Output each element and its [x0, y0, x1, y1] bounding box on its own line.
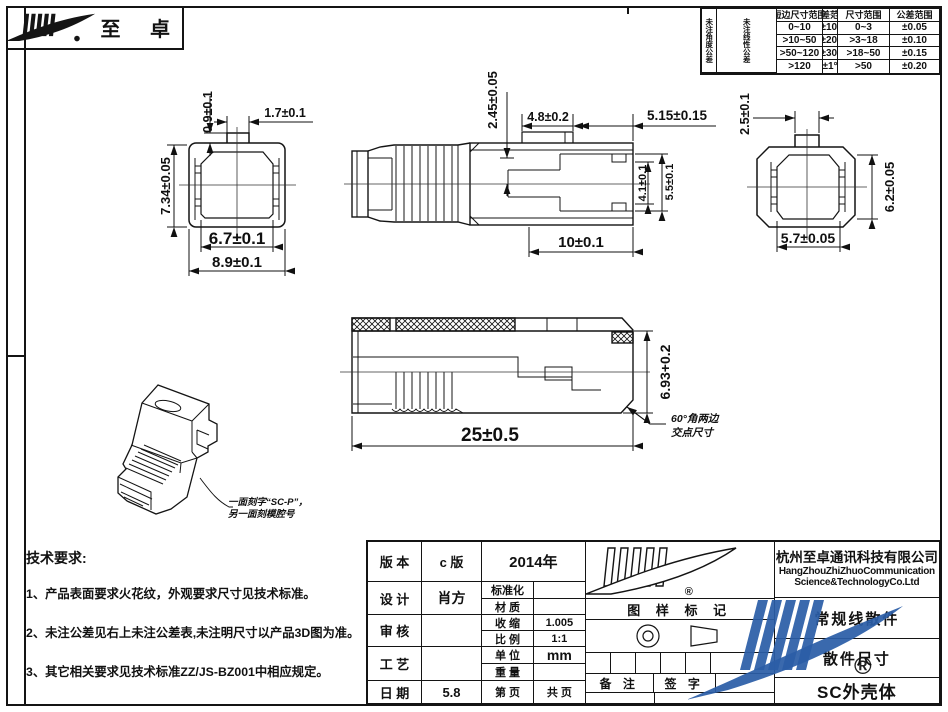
year-value: 2014年 — [482, 542, 585, 582]
registered-mark-blue: ® — [854, 653, 872, 680]
dim-front-outer-width: 8.9±0.1 — [212, 254, 262, 271]
dim-side-window-height: 5.5±0.1 — [664, 164, 676, 201]
company-cell: 杭州至卓通讯科技有限公司 HangZhouZhiZhuoCommunicatio… — [775, 542, 939, 598]
dim-rear-height: 6.2±0.05 — [882, 162, 897, 213]
rear-view: 2.5±0.1 6.2±0.05 5.7±0.05 — [738, 93, 897, 252]
engrave-note-line2: 另一面刻模腔号 — [228, 508, 296, 520]
shrink-value: 1.005 — [534, 615, 585, 631]
version-value: c 版 — [422, 542, 482, 582]
process-value — [422, 647, 482, 681]
dim-front-inner-width: 6.7±0.1 — [209, 229, 266, 248]
review-label: 审 核 — [368, 615, 422, 647]
dim-side-key-height: 2.45±0.05 — [485, 71, 500, 129]
zhizhuo-logo-outline-icon — [586, 542, 775, 598]
dim-rear-tab-width: 2.5±0.1 — [738, 93, 752, 135]
design-label: 设 计 — [368, 582, 422, 615]
version-label: 版 本 — [368, 542, 422, 582]
dim-front-tab-height: 0.9±0.1 — [201, 91, 215, 133]
date-value: 5.8 — [422, 681, 482, 703]
tech-req-item: 1、产品表面要求火花纹，外观要求尺寸见技术标准。 — [26, 584, 368, 602]
dim-front-height: 7.34±0.05 — [158, 157, 173, 215]
page-label: 第 页 — [482, 681, 534, 703]
date-label: 日 期 — [368, 681, 422, 703]
process-label: 工 艺 — [368, 647, 422, 681]
dim-side-body-length: 10±0.1 — [558, 234, 604, 251]
design-value: 肖方 — [422, 582, 482, 615]
company-name-en2: Science&TechnologyCo.Ltd — [794, 577, 919, 589]
pages-label: 共 页 — [534, 681, 585, 703]
technical-requirements: 技术要求: 1、产品表面要求火花纹，外观要求尺寸见技术标准。 2、未注公差见右上… — [26, 548, 368, 701]
company-name-en1: HangZhouZhiZhuoCommunication — [779, 566, 935, 578]
dim-side-tab-length: 4.8±0.2 — [527, 110, 569, 124]
side-view: 2.45±0.05 4.8±0.2 5.15±0.15 4.1±0.1 5.5±… — [344, 71, 716, 257]
tech-req-item: 2、未注公差见右上未注公差表,未注明尺寸以产品3D图为准。 — [26, 623, 368, 641]
scale-label: 比 例 — [482, 631, 534, 647]
review-value — [422, 615, 482, 647]
engrave-note-line1: 一面刻字“SC-P”， — [228, 496, 308, 508]
company-name-cn: 杭州至卓通讯科技有限公司 — [776, 550, 938, 566]
material-label: 材 质 — [482, 599, 534, 615]
dim-rear-width: 5.7±0.05 — [781, 230, 836, 246]
tech-req-item: 3、其它相关要求见技术标准ZZ/JS-BZ001中相应规定。 — [26, 662, 368, 680]
drawing-sheet: 至 卓 未注角度公差 短边尺寸范围 公差范围 未注线性公差 尺寸范围 公差范围 … — [0, 0, 948, 712]
tech-req-title: 技术要求: — [26, 548, 368, 568]
dim-front-tab-width: 1.7±0.1 — [264, 106, 306, 120]
dim-side-nose-length: 5.15±0.15 — [647, 108, 707, 123]
standardization-value — [534, 582, 585, 599]
dim-side-slot-height: 4.1±0.1 — [637, 165, 649, 202]
unit-value: mm — [534, 647, 585, 664]
title-block-logo-cell: ® — [586, 542, 774, 599]
unit-label: 单 位 — [482, 647, 534, 664]
weight-label: 重 量 — [482, 664, 534, 681]
material-value — [534, 599, 585, 615]
profile-view: 25±0.5 6.93+0.2 60°角两边 交点尺寸 — [340, 318, 720, 451]
title-block-left: 版 本 c 版 2014年 设 计 肖方 标准化 材 质 审 核 收 缩 1.0… — [368, 542, 586, 703]
angle-note-line1: 60°角两边 — [671, 412, 720, 425]
dim-profile-height: 6.93+0.2 — [657, 344, 673, 399]
shrink-label: 收 缩 — [482, 615, 534, 631]
front-view: 7.34±0.05 0.9±0.1 1.7±0.1 6.7±0.1 8.9±0.… — [158, 91, 313, 276]
blue-watermark-logo-icon: ® — [688, 592, 928, 707]
scale-value: 1:1 — [534, 631, 585, 647]
isometric-view: 一面刻字“SC-P”， 另一面刻模腔号 — [118, 385, 308, 520]
remark-label: 备 注 — [586, 674, 654, 692]
weight-value — [534, 664, 585, 681]
angle-note-line2: 交点尺寸 — [671, 426, 714, 439]
standardization-label: 标准化 — [482, 582, 534, 599]
dim-profile-length: 25±0.5 — [461, 425, 519, 446]
